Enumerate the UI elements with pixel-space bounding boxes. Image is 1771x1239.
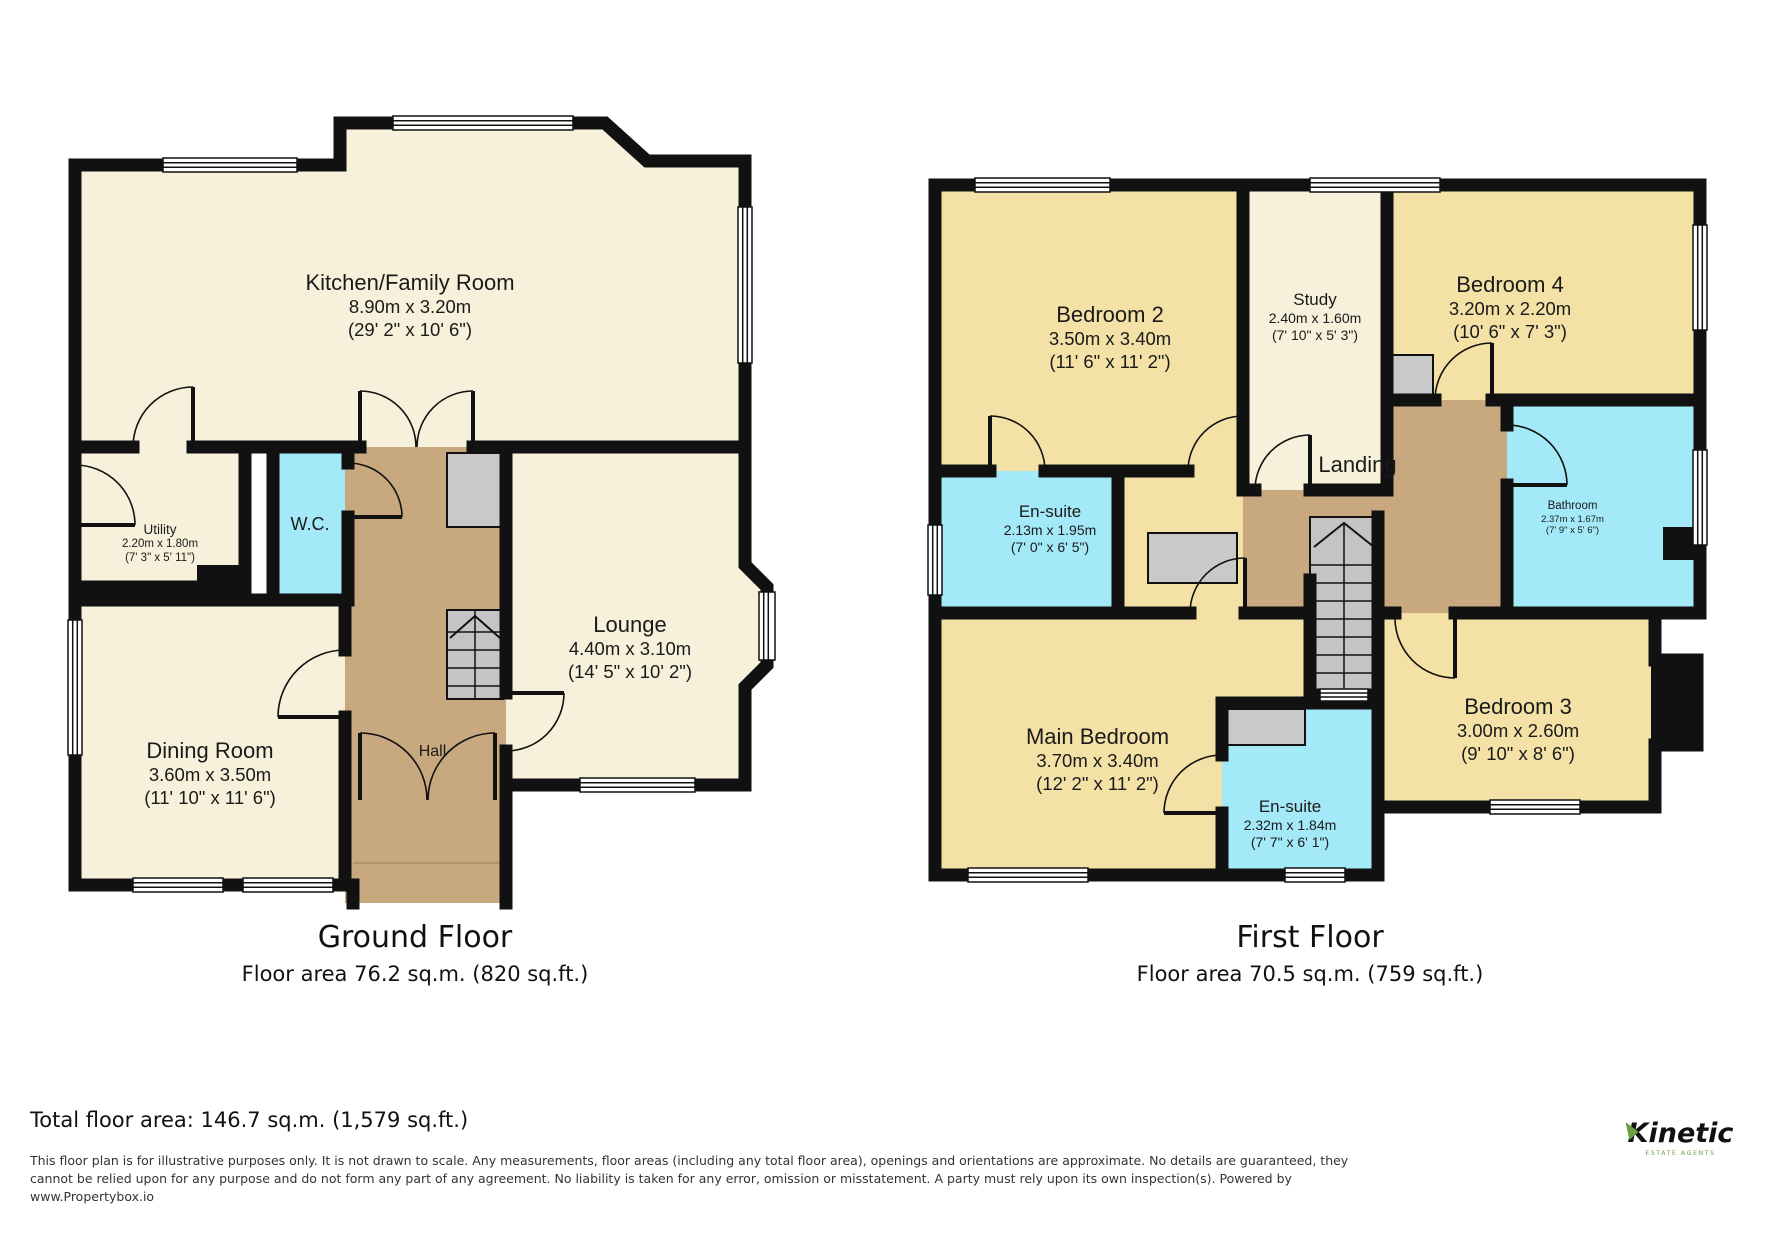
room-name: Bedroom 3 <box>1398 694 1638 720</box>
room-imperial: (29' 2" x 10' 6") <box>170 319 650 341</box>
room-label-kitchen: Kitchen/Family Room 8.90m x 3.20m (29' 2… <box>170 270 650 341</box>
room-name: En-suite <box>960 502 1140 522</box>
room-imperial: (14' 5" x 10' 2") <box>510 661 750 683</box>
room-name: Kitchen/Family Room <box>170 270 650 296</box>
room-imperial: (7' 9" x 5' 6") <box>1510 525 1635 536</box>
disclaimer-line-2: cannot be relied upon for any purpose an… <box>30 1170 1410 1188</box>
room-name: Utility <box>80 522 240 538</box>
kinetic-logo-text: Kinetic <box>1628 1118 1734 1149</box>
room-imperial: (7' 3" x 5' 11") <box>80 552 240 566</box>
room-label-dining: Dining Room 3.60m x 3.50m (11' 10" x 11'… <box>90 738 330 809</box>
floor-plan-page: { "colors": { "room_cream": "#F7F1DB", "… <box>0 0 1771 1239</box>
room-imperial: (11' 6" x 11' 2") <box>990 351 1230 373</box>
room-label-bathroom: Bathroom 2.37m x 1.67m (7' 9" x 5' 6") <box>1510 500 1635 537</box>
room-name: W.C. <box>255 514 365 536</box>
room-metric: 2.40m x 1.60m <box>1245 310 1385 327</box>
room-label-wc: W.C. <box>255 514 365 536</box>
ground-floor-area: Floor area 76.2 sq.m. (820 sq.ft.) <box>45 962 785 986</box>
room-name: Bedroom 2 <box>990 302 1230 328</box>
room-imperial: (12' 2" x 11' 2") <box>975 773 1220 795</box>
room-name: Study <box>1245 290 1385 310</box>
room-label-bedroom2: Bedroom 2 3.50m x 3.40m (11' 6" x 11' 2"… <box>990 302 1230 373</box>
room-metric: 3.60m x 3.50m <box>90 764 330 786</box>
first-floor-area: Floor area 70.5 sq.m. (759 sq.ft.) <box>895 962 1725 986</box>
disclaimer-text: This floor plan is for illustrative purp… <box>30 1152 1410 1205</box>
kinetic-logo-tagline: ESTATE AGENTS <box>1618 1150 1743 1157</box>
room-metric: 3.50m x 3.40m <box>990 328 1230 350</box>
room-name: Hall <box>385 742 480 761</box>
room-label-utility: Utility 2.20m x 1.80m (7' 3" x 5' 11") <box>80 522 240 566</box>
first-floor-caption: First Floor Floor area 70.5 sq.m. (759 s… <box>895 920 1725 986</box>
room-metric: 3.20m x 2.20m <box>1390 298 1630 320</box>
room-imperial: (10' 6" x 7' 3") <box>1390 321 1630 343</box>
room-metric: 2.37m x 1.67m <box>1510 514 1635 525</box>
room-label-main-bedroom: Main Bedroom 3.70m x 3.40m (12' 2" x 11'… <box>975 724 1220 795</box>
disclaimer-line-3: www.Propertybox.io <box>30 1188 1410 1206</box>
room-metric: 3.70m x 3.40m <box>975 750 1220 772</box>
room-label-study: Study 2.40m x 1.60m (7' 10" x 5' 3") <box>1245 290 1385 344</box>
room-name: Bathroom <box>1510 500 1635 514</box>
ground-floor-title: Ground Floor <box>45 920 785 955</box>
room-label-ensuite1: En-suite 2.13m x 1.95m (7' 0" x 6' 5") <box>960 502 1140 556</box>
room-imperial: (7' 0" x 6' 5") <box>960 539 1140 556</box>
room-name: Main Bedroom <box>975 724 1220 750</box>
room-name: Dining Room <box>90 738 330 764</box>
room-label-ensuite2: En-suite 2.32m x 1.84m (7' 7" x 6' 1") <box>1200 797 1380 851</box>
room-name: Landing <box>1280 452 1435 478</box>
room-imperial: (9' 10" x 8' 6") <box>1398 743 1638 765</box>
room-label-hall: Hall <box>385 742 480 761</box>
room-metric: 2.20m x 1.80m <box>80 538 240 552</box>
room-metric: 2.32m x 1.84m <box>1200 817 1380 834</box>
ground-stairs <box>447 610 503 699</box>
disclaimer-line-1: This floor plan is for illustrative purp… <box>30 1152 1410 1170</box>
room-metric: 4.40m x 3.10m <box>510 638 750 660</box>
room-label-landing: Landing <box>1280 452 1435 478</box>
total-floor-area: Total floor area: 146.7 sq.m. (1,579 sq.… <box>30 1108 468 1132</box>
room-metric: 2.13m x 1.95m <box>960 522 1140 539</box>
room-name: Lounge <box>510 612 750 638</box>
kinetic-logo: Kinetic ESTATE AGENTS <box>1618 1118 1743 1157</box>
room-name: En-suite <box>1200 797 1380 817</box>
kinetic-logo-word: Kinetic <box>1628 1118 1734 1149</box>
main-bedroom-nook-area <box>1222 613 1310 703</box>
first-floor-stairs <box>1310 517 1378 695</box>
room-name: Bedroom 4 <box>1390 272 1630 298</box>
ground-floor-caption: Ground Floor Floor area 76.2 sq.m. (820 … <box>45 920 785 986</box>
room-metric: 3.00m x 2.60m <box>1398 720 1638 742</box>
room-label-bedroom3: Bedroom 3 3.00m x 2.60m (9' 10" x 8' 6") <box>1398 694 1638 765</box>
room-label-lounge: Lounge 4.40m x 3.10m (14' 5" x 10' 2") <box>510 612 750 683</box>
room-imperial: (7' 10" x 5' 3") <box>1245 327 1385 344</box>
room-label-bedroom4: Bedroom 4 3.20m x 2.20m (10' 6" x 7' 3") <box>1390 272 1630 343</box>
room-imperial: (7' 7" x 6' 1") <box>1200 834 1380 851</box>
room-imperial: (11' 10" x 11' 6") <box>90 787 330 809</box>
first-floor-title: First Floor <box>895 920 1725 955</box>
room-metric: 8.90m x 3.20m <box>170 296 650 318</box>
